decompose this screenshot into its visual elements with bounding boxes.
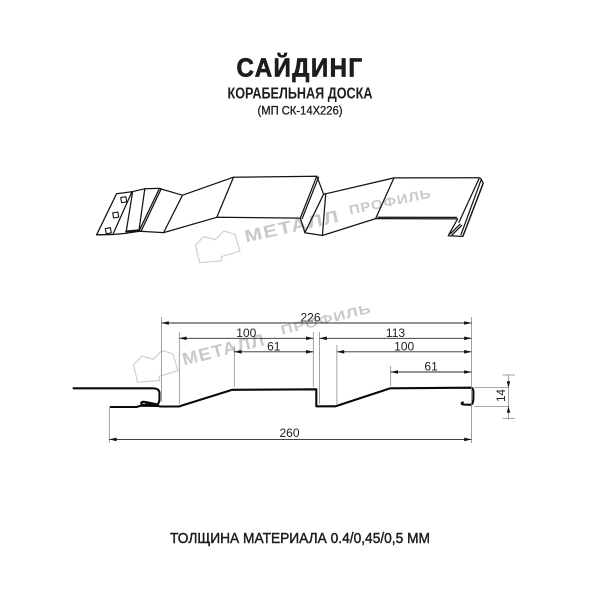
svg-text:(МП СК-14Х226): (МП СК-14Х226): [258, 106, 343, 118]
svg-text:14: 14: [496, 389, 508, 402]
svg-text:ТОЛЩИНА МАТЕРИАЛА 0.4/0,45/0,5: ТОЛЩИНА МАТЕРИАЛА 0.4/0,45/0,5 ММ: [170, 531, 430, 547]
svg-text:61: 61: [424, 360, 438, 374]
svg-text:61: 61: [267, 339, 281, 353]
svg-text:КОРАБЕЛЬНАЯ ДОСКА: КОРАБЕЛЬНАЯ ДОСКА: [228, 86, 373, 103]
svg-text:226: 226: [300, 310, 320, 324]
svg-text:113: 113: [386, 326, 405, 340]
svg-text:260: 260: [279, 426, 299, 440]
svg-text:100: 100: [236, 326, 256, 340]
svg-text:100: 100: [394, 339, 414, 353]
svg-text:САЙДИНГ: САЙДИНГ: [237, 53, 364, 83]
